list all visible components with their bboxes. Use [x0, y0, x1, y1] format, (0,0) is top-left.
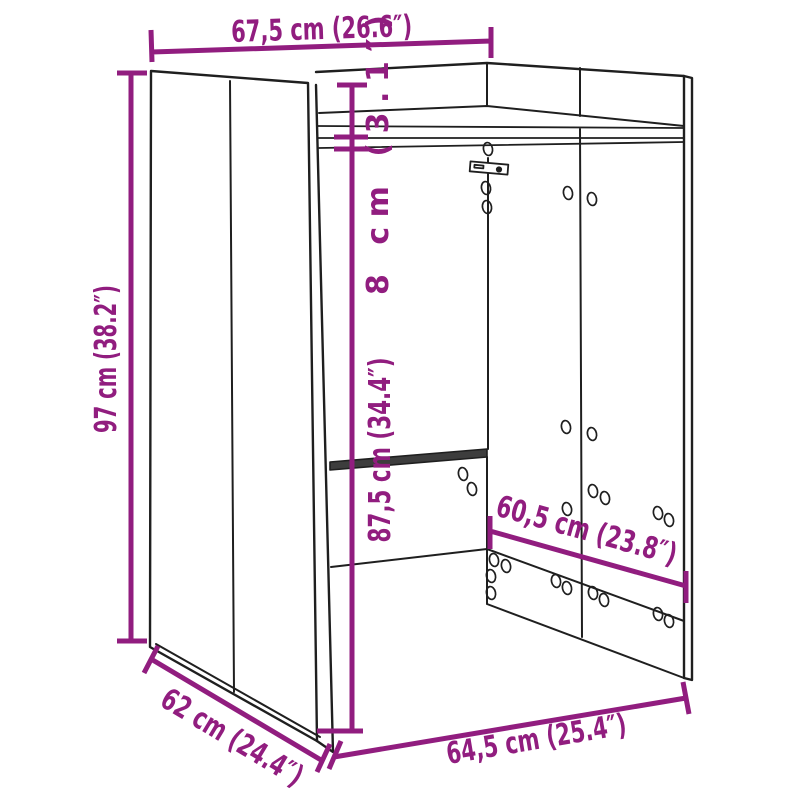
label-top-clearance: 8 cm (3.1″) [361, 15, 396, 295]
label-side-height: 97 cm (38.2″) [89, 285, 124, 433]
diagram-canvas: 67,5 cm (26.6″) 97 cm (38.2″) 8 cm (3.1″… [0, 0, 800, 800]
label-inner-height: 87,5 cm (34.4″) [363, 358, 398, 543]
connector-bracket-icon [470, 161, 509, 174]
furniture-dimension-diagram: 67,5 cm (26.6″) 97 cm (38.2″) 8 cm (3.1″… [0, 0, 800, 800]
back-panel-seam-right [580, 129, 582, 637]
left-panel-front-edge [316, 85, 333, 752]
label-bottom-front-width: 64,5 cm (25.4″) [444, 707, 629, 772]
furniture-drawing [150, 63, 692, 752]
bottom-back-rail [487, 549, 684, 678]
